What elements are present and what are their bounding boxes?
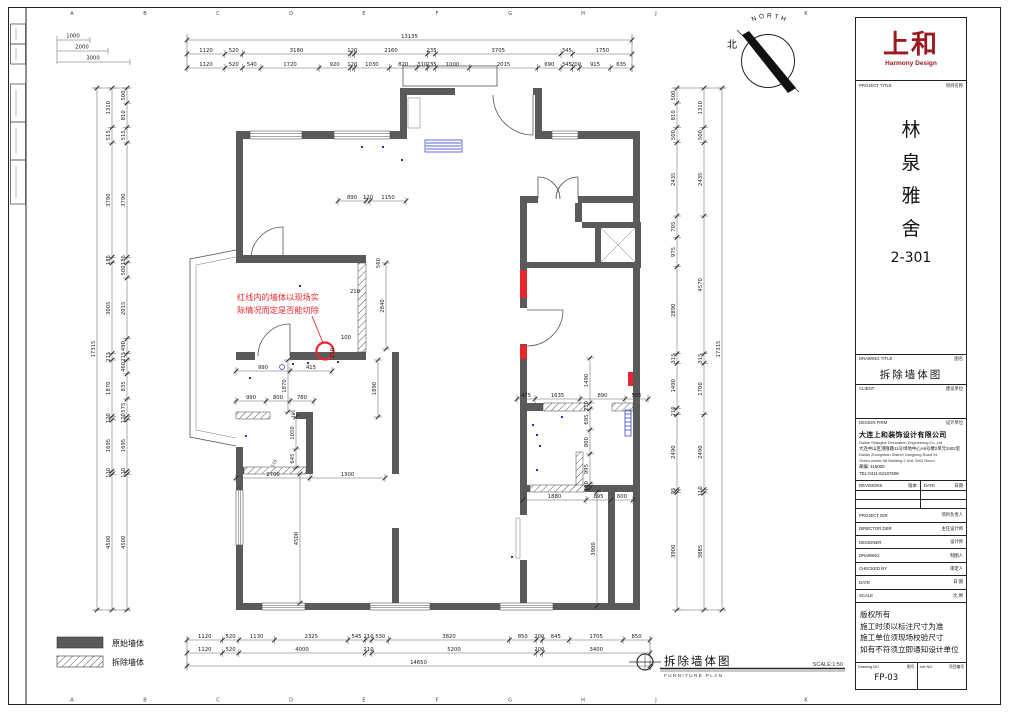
svg-text:780: 780 xyxy=(297,395,308,401)
dim-label: 210 xyxy=(330,347,336,358)
role-en: DIRECTOR DER xyxy=(859,526,892,531)
scalebar-label: 3000 xyxy=(86,56,100,62)
dim-chain-left-inner: 5008105153790185500201549021546083557512… xyxy=(121,86,131,613)
svg-text:635: 635 xyxy=(616,62,626,68)
dim-chain-entry: 8901201150 xyxy=(336,195,409,205)
role-row-date: DATE 日 期 xyxy=(856,576,966,589)
note-line: 如有不符须立即通知设计单位 xyxy=(860,644,962,656)
svg-text:500: 500 xyxy=(121,265,127,276)
svg-text:520: 520 xyxy=(226,647,237,653)
svg-text:5200: 5200 xyxy=(447,647,461,653)
north-needle xyxy=(742,31,796,93)
dim-chain-2840: 2840 xyxy=(380,261,390,352)
svg-text:890: 890 xyxy=(597,393,608,399)
dim-chain-left-total: 17315 xyxy=(91,86,101,613)
project-name-char: 雅 xyxy=(856,180,966,213)
note-line: 施工单位须现场校验尺寸 xyxy=(860,632,962,644)
dim-chain-1870: 1870 xyxy=(282,358,292,415)
svg-text:17315: 17315 xyxy=(91,341,97,358)
svg-text:890: 890 xyxy=(347,195,358,201)
svg-text:2490: 2490 xyxy=(698,445,704,459)
role-zh: 比 例 xyxy=(953,593,963,599)
plan-title: 拆除墙体图 xyxy=(664,654,732,668)
svg-text:1120: 1120 xyxy=(199,48,213,54)
number-block: Drawing NO 图号 FP-03 Job NO 项目编号 xyxy=(856,663,966,689)
project-name: 林 泉 雅 舍 2-301 xyxy=(856,90,966,354)
svg-text:4500: 4500 xyxy=(106,535,112,549)
dim-label: 100 xyxy=(341,335,352,341)
svg-text:1120: 1120 xyxy=(198,647,212,653)
role-row-scale: SCALE 比 例 xyxy=(856,590,966,603)
dim-chain-mid-b: 990800780 xyxy=(234,395,317,405)
legend-swatch-original xyxy=(57,637,103,648)
svg-text:3005: 3005 xyxy=(106,301,112,314)
role-row-project-dir: PROJECT DIR 项目负责人 xyxy=(856,509,966,522)
svg-text:520: 520 xyxy=(229,48,240,54)
grid-letter: D xyxy=(289,698,293,704)
svg-text:2325: 2325 xyxy=(305,634,318,640)
firm-telephone: TEL:0411-62187608 xyxy=(859,471,963,478)
svg-text:500: 500 xyxy=(698,129,704,140)
dim-label: 560 xyxy=(376,257,382,268)
drawing-no-label-zh: 图号 xyxy=(907,665,915,670)
svg-text:315: 315 xyxy=(671,353,677,363)
drawing-no-label-en: Drawing NO xyxy=(858,665,879,670)
svg-text:215: 215 xyxy=(106,352,112,362)
plan-scale: SCALE:1:50 xyxy=(813,662,843,668)
svg-text:1890: 1890 xyxy=(372,381,378,395)
project-title-label: PROJECT TITLE 项目名称 xyxy=(856,81,966,90)
svg-text:2015: 2015 xyxy=(497,62,510,68)
svg-text:995: 995 xyxy=(584,464,590,474)
svg-text:810: 810 xyxy=(121,110,127,121)
svg-text:1490: 1490 xyxy=(671,378,677,392)
svg-text:2840: 2840 xyxy=(380,299,386,313)
svg-text:1870: 1870 xyxy=(106,381,112,395)
client-label: CLIENT 建设单位 xyxy=(856,384,966,394)
design-firm-label-zh: 设计单位 xyxy=(946,420,963,426)
balcony-bay xyxy=(190,250,236,446)
svg-text:540: 540 xyxy=(247,62,258,68)
role-en: DATE xyxy=(859,580,870,585)
svg-text:4570: 4570 xyxy=(698,278,704,292)
dim-chain-1050: 1050645 xyxy=(290,415,300,471)
graphic-scale-bars: 1000 2000 3000 xyxy=(57,34,130,66)
legend-swatch-demolish xyxy=(57,656,103,667)
grid-letter: K xyxy=(804,11,808,17)
firm-address-zh: 大连中山区港隆路11号绿地中心A6号楼2单元3402室 xyxy=(859,446,963,453)
svg-text:460: 460 xyxy=(121,361,127,372)
svg-text:14650: 14650 xyxy=(410,660,427,666)
revisions-header-left: REVISIONS 版本 xyxy=(856,481,920,490)
grid-letter: H xyxy=(581,11,585,17)
svg-text:4000: 4000 xyxy=(295,647,309,653)
svg-text:475: 475 xyxy=(521,393,531,399)
svg-text:515: 515 xyxy=(121,130,127,140)
design-firm-label-en: DESIGN FIRM xyxy=(859,420,887,426)
svg-text:1490: 1490 xyxy=(584,373,590,387)
dim-chain-4500: 4500 xyxy=(294,472,304,606)
svg-text:990: 990 xyxy=(246,395,257,401)
svg-text:1700: 1700 xyxy=(698,382,704,396)
date-label-en: DATE xyxy=(924,483,935,489)
svg-text:110: 110 xyxy=(584,480,590,491)
svg-text:1720: 1720 xyxy=(283,62,297,68)
svg-text:500: 500 xyxy=(671,129,677,140)
svg-text:1695: 1695 xyxy=(121,439,127,452)
sheet-margin xyxy=(11,8,27,704)
svg-text:500: 500 xyxy=(671,90,677,101)
revision-empty-row xyxy=(856,491,966,500)
svg-text:1130: 1130 xyxy=(250,634,264,640)
role-en: SCALE xyxy=(859,593,873,598)
title-block: 上和 Harmony Design PROJECT TITLE 项目名称 林 泉… xyxy=(855,17,967,690)
grid-letter: F xyxy=(436,11,439,17)
svg-text:235: 235 xyxy=(426,48,436,54)
svg-text:1120: 1120 xyxy=(199,62,213,68)
svg-text:120: 120 xyxy=(121,413,127,424)
role-en: DRAWING xyxy=(859,553,880,558)
dim-chain-1890: 1890 xyxy=(372,358,382,420)
dim-chain-kitchen-top: 4751635890505 xyxy=(515,393,651,403)
plan-title-group: 拆除墙体图 FURNITURE PLAN SCALE:1:50 xyxy=(629,654,845,678)
svg-text:4500: 4500 xyxy=(294,531,300,545)
margin-box xyxy=(11,24,26,204)
svg-text:110: 110 xyxy=(121,467,127,478)
legend-label-demolish: 拆除墙体 xyxy=(112,657,144,667)
svg-text:210: 210 xyxy=(363,647,374,653)
svg-text:2435: 2435 xyxy=(671,173,677,186)
svg-text:895: 895 xyxy=(593,494,603,500)
grid-letter: A xyxy=(70,11,74,17)
client-label-zh: 建设单位 xyxy=(946,386,963,392)
grid-letter: B xyxy=(143,698,147,704)
svg-text:850: 850 xyxy=(631,634,642,640)
job-no-label-en: Job NO xyxy=(920,665,933,670)
svg-text:515: 515 xyxy=(106,130,112,140)
svg-text:235: 235 xyxy=(426,62,436,68)
revision-empty-row xyxy=(856,500,966,509)
svg-text:850: 850 xyxy=(518,634,529,640)
svg-text:1635: 1635 xyxy=(551,393,564,399)
svg-text:1750: 1750 xyxy=(596,48,610,54)
witness-lines xyxy=(92,34,726,670)
role-zh: 项目负责人 xyxy=(942,512,963,518)
svg-text:820: 820 xyxy=(398,62,409,68)
drawing-number-cell: Drawing NO 图号 FP-03 xyxy=(856,663,918,689)
svg-text:490: 490 xyxy=(121,340,127,351)
legend-label-original: 原始墙体 xyxy=(112,638,144,648)
svg-text:800: 800 xyxy=(273,395,284,401)
drawing-title-label: DRAWING TITLE 图名 xyxy=(856,354,966,364)
scalebar-label: 1000 xyxy=(66,34,80,40)
role-en: PROJECT DIR xyxy=(859,513,888,518)
svg-text:530: 530 xyxy=(375,634,386,640)
role-zh: 制图人 xyxy=(950,553,963,559)
radiator-blue xyxy=(625,410,631,436)
svg-text:810: 810 xyxy=(671,110,677,121)
client-empty-space xyxy=(856,394,966,418)
svg-text:120: 120 xyxy=(347,62,358,68)
grid-letter: H xyxy=(581,698,585,704)
role-row-checked: CHECKED BY 审定人 xyxy=(856,563,966,576)
svg-text:3885: 3885 xyxy=(698,545,704,558)
date-label-zh: 日期 xyxy=(954,483,963,489)
design-firm-info: 大连上和装饰设计有限公司 Dalian Shanghe Decoration E… xyxy=(856,428,966,480)
dim-chain-right-outer: 131050024354570315170024901103885 xyxy=(698,86,708,613)
note-line: 版权所有 xyxy=(860,609,962,621)
grid-letter: G xyxy=(508,11,512,17)
floor-plan-drawing: A B C D E F G H J K A B C D E F G H J K xyxy=(0,0,855,712)
role-row-designer: DESIGNER 设计师 xyxy=(856,536,966,549)
dim-chain-right-total: 17315 xyxy=(716,86,726,613)
svg-text:500: 500 xyxy=(121,90,127,101)
job-no-label-zh: 项目编号 xyxy=(949,665,964,670)
dim-chain-kitchen-bottom: 1880895600 xyxy=(521,494,636,504)
svg-text:200: 200 xyxy=(571,62,582,68)
grid-letter: C xyxy=(216,11,220,17)
svg-text:835: 835 xyxy=(121,381,127,391)
svg-text:3400: 3400 xyxy=(590,647,604,653)
logo-text-zh: 上和 xyxy=(883,32,939,58)
svg-text:210: 210 xyxy=(363,634,374,640)
annotation-line1: 红线内的墙体以现场实 xyxy=(237,292,319,302)
grid-letter: B xyxy=(143,11,147,17)
svg-text:545: 545 xyxy=(352,634,362,640)
grid-letter: G xyxy=(508,698,512,704)
dim-chain-left-mid: 131051537901853005215187012016951104500 xyxy=(106,86,116,613)
plan-subtitle: FURNITURE PLAN xyxy=(664,673,723,678)
drawing-sheet: A B C D E F G H J K A B C D E F G H J K xyxy=(0,0,1009,712)
svg-text:915: 915 xyxy=(590,62,600,68)
dim-label: 210 xyxy=(350,289,361,295)
dim-chain-kitchen-v: 1490210695800995110 xyxy=(584,356,594,491)
design-firm-label: DESIGN FIRM 设计单位 xyxy=(856,418,966,428)
firm-postcode: 邮编: 116000 xyxy=(859,464,963,471)
role-row-drawing: DRAWING 制图人 xyxy=(856,549,966,562)
role-zh: 审定人 xyxy=(950,566,963,572)
note-line: 施工时须以标注尺寸为准 xyxy=(860,621,962,633)
project-title-label-en: PROJECT TITLE xyxy=(859,83,892,89)
logo-text-en: Harmony Design xyxy=(885,60,937,67)
grid-letter: K xyxy=(804,698,808,704)
original-walls xyxy=(236,88,640,610)
svg-text:575: 575 xyxy=(121,403,127,413)
svg-text:345: 345 xyxy=(562,48,572,54)
dim-label: 110 xyxy=(270,458,278,468)
svg-text:185: 185 xyxy=(121,255,127,265)
role-zh: 主任设计师 xyxy=(942,526,963,532)
revisions-header: REVISIONS 版本 DATE 日期 xyxy=(856,480,966,491)
svg-text:990: 990 xyxy=(258,365,269,371)
project-name-char: 舍 xyxy=(856,213,966,246)
svg-text:120: 120 xyxy=(363,195,374,201)
role-en: DESIGNER xyxy=(859,540,881,545)
svg-text:705: 705 xyxy=(671,222,677,232)
svg-text:1030: 1030 xyxy=(365,62,379,68)
svg-text:1705: 1705 xyxy=(589,634,602,640)
svg-text:17315: 17315 xyxy=(716,341,722,358)
dim-chain-3900: 3900 xyxy=(591,490,601,609)
svg-text:200: 200 xyxy=(534,634,545,640)
cabinet-blue xyxy=(425,140,462,152)
grid-letter: J xyxy=(654,698,656,704)
svg-text:645: 645 xyxy=(290,453,296,463)
revisions-label-en: REVISIONS xyxy=(859,483,882,489)
svg-text:520: 520 xyxy=(226,634,237,640)
svg-text:2160: 2160 xyxy=(384,48,398,54)
svg-text:695: 695 xyxy=(584,414,590,424)
svg-text:505: 505 xyxy=(631,393,641,399)
svg-text:1870: 1870 xyxy=(282,379,288,393)
svg-text:120: 120 xyxy=(347,48,358,54)
svg-text:1300: 1300 xyxy=(341,472,355,478)
svg-text:1310: 1310 xyxy=(106,100,112,114)
svg-text:210: 210 xyxy=(584,400,590,411)
job-number-cell: Job NO 项目编号 xyxy=(918,663,967,689)
north-label-en-text: NORTH xyxy=(751,13,789,25)
svg-text:1050: 1050 xyxy=(290,426,296,440)
svg-text:975: 975 xyxy=(671,247,677,257)
firm-name-zh: 大连上和装饰设计有限公司 xyxy=(859,430,963,440)
svg-text:1695: 1695 xyxy=(106,439,112,452)
svg-text:845: 845 xyxy=(551,634,561,640)
svg-text:3900: 3900 xyxy=(591,542,597,556)
copyright-notes: 版权所有 施工时须以标注尺寸为准 施工单位须现场校验尺寸 如有不符须立即通知设计… xyxy=(856,603,966,663)
client-label-en: CLIENT xyxy=(859,386,874,392)
role-zh: 日 期 xyxy=(953,579,963,585)
north-label-zh: 北 xyxy=(727,39,737,51)
company-logo: 上和 Harmony Design xyxy=(856,18,966,81)
svg-text:1000: 1000 xyxy=(446,62,460,68)
grid-letter: E xyxy=(362,698,365,704)
dim-chain-top-mid: 11205203180120216023537053451750 xyxy=(185,48,635,58)
north-arrow: 北 NORTH xyxy=(727,13,799,93)
svg-text:920: 920 xyxy=(330,62,341,68)
grid-letter: A xyxy=(70,698,74,704)
svg-text:1880: 1880 xyxy=(548,494,562,500)
svg-text:3180: 3180 xyxy=(290,48,304,54)
svg-text:110: 110 xyxy=(698,486,704,497)
grid-letters-bottom: A B C D E F G H J K xyxy=(70,698,808,704)
svg-text:210: 210 xyxy=(671,406,677,417)
svg-text:2435: 2435 xyxy=(698,173,704,186)
project-name-char: 泉 xyxy=(856,147,966,180)
svg-text:215: 215 xyxy=(121,352,127,362)
legend: 原始墙体 拆除墙体 xyxy=(57,637,144,667)
svg-text:3705: 3705 xyxy=(492,48,505,54)
svg-text:2015: 2015 xyxy=(121,302,127,315)
svg-text:415: 415 xyxy=(306,365,316,371)
svg-text:185: 185 xyxy=(106,255,112,265)
svg-text:800: 800 xyxy=(584,436,590,447)
revisions-header-right: DATE 日期 xyxy=(920,481,966,490)
dim-chain-bottom-total: 14650 xyxy=(185,660,653,670)
grid-letter: D xyxy=(289,11,293,17)
svg-text:13135: 13135 xyxy=(401,34,418,40)
north-label-en: NORTH xyxy=(751,13,789,25)
revisions-label-zh: 版本 xyxy=(908,483,917,489)
svg-text:4500: 4500 xyxy=(121,535,127,549)
grid-letters-top: A B C D E F G H J K xyxy=(70,11,808,17)
dim-chain-right-inner: 5008105002435705975289031514902102490953… xyxy=(671,86,681,613)
entry-landing xyxy=(403,66,497,128)
role-en: CHECKED BY xyxy=(859,566,887,571)
drawing-title-label-en: DRAWING TITLE xyxy=(859,356,892,362)
svg-text:315: 315 xyxy=(698,353,704,363)
svg-text:2890: 2890 xyxy=(671,303,677,317)
svg-text:1120: 1120 xyxy=(198,634,212,640)
red-annotation: 红线内的墙体以现场实 际情况而定是否能切除 xyxy=(237,292,334,360)
svg-text:3820: 3820 xyxy=(442,634,456,640)
svg-text:110: 110 xyxy=(106,467,112,478)
svg-text:3900: 3900 xyxy=(671,544,677,558)
grid-letter: C xyxy=(216,698,220,704)
svg-text:3790: 3790 xyxy=(121,193,127,207)
project-name-char: 林 xyxy=(856,114,966,147)
elevator-shaft xyxy=(595,222,641,268)
drawing-title: 拆除墙体图 xyxy=(856,364,966,384)
dim-chain-bottom-mid: 1120520400021052002003400 xyxy=(185,647,653,657)
red-wall-marks xyxy=(520,270,633,386)
annotation-line2: 际情况而定是否能切除 xyxy=(237,305,319,315)
scalebar-label: 2000 xyxy=(75,45,89,51)
dim-chain-top-inner: 1120520540172092012010308203102351000201… xyxy=(185,62,635,72)
svg-text:600: 600 xyxy=(617,494,628,500)
dim-chain-top-total: 13135 xyxy=(185,34,635,44)
svg-text:1310: 1310 xyxy=(698,100,704,114)
svg-text:3790: 3790 xyxy=(106,193,112,207)
dim-label: 180 xyxy=(291,410,296,418)
drawing-title-label-zh: 图名 xyxy=(954,356,963,362)
svg-text:1150: 1150 xyxy=(381,195,395,201)
role-zh: 设计师 xyxy=(950,539,963,545)
project-title-label-zh: 项目名称 xyxy=(946,83,963,89)
svg-text:95: 95 xyxy=(671,488,677,495)
svg-text:2700: 2700 xyxy=(266,472,280,478)
grid-letter: E xyxy=(362,11,365,17)
grid-letter: J xyxy=(654,11,656,17)
grid-letter: F xyxy=(436,698,439,704)
project-number: 2-301 xyxy=(856,250,966,266)
dim-chain-bottom-inner: 1120520113023255452105303820850200845170… xyxy=(185,634,653,644)
role-row-director: DIRECTOR DER 主任设计师 xyxy=(856,523,966,536)
svg-text:2490: 2490 xyxy=(671,445,677,459)
drawing-number: FP-03 xyxy=(856,671,917,683)
svg-text:520: 520 xyxy=(229,62,240,68)
svg-text:120: 120 xyxy=(106,413,112,424)
svg-text:200: 200 xyxy=(534,647,545,653)
svg-text:690: 690 xyxy=(544,62,555,68)
